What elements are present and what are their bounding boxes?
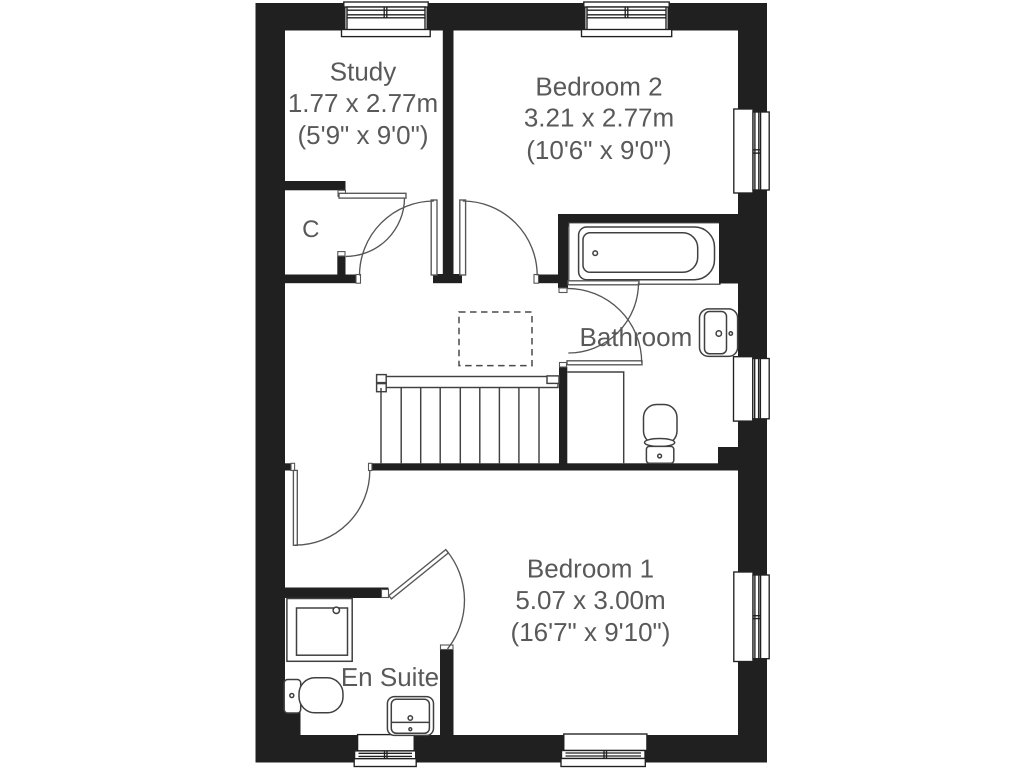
svg-text:(16'7" x 9'10"): (16'7" x 9'10") (511, 617, 671, 647)
svg-text:Bedroom 1: Bedroom 1 (527, 553, 654, 583)
svg-text:En Suite: En Suite (341, 662, 439, 692)
svg-text:C: C (302, 216, 319, 243)
svg-text:5.07 x 3.00m: 5.07 x 3.00m (515, 585, 665, 615)
svg-text:(5'9" x 9'0"): (5'9" x 9'0") (298, 120, 429, 150)
svg-text:Study: Study (330, 57, 397, 87)
svg-text:Bathroom: Bathroom (580, 322, 693, 352)
svg-text:1.77 x 2.77m: 1.77 x 2.77m (288, 88, 438, 118)
svg-text:3.21 x 2.77m: 3.21 x 2.77m (524, 103, 674, 133)
svg-text:Bedroom 2: Bedroom 2 (535, 71, 662, 101)
svg-text:(10'6" x 9'0"): (10'6" x 9'0") (526, 135, 671, 165)
